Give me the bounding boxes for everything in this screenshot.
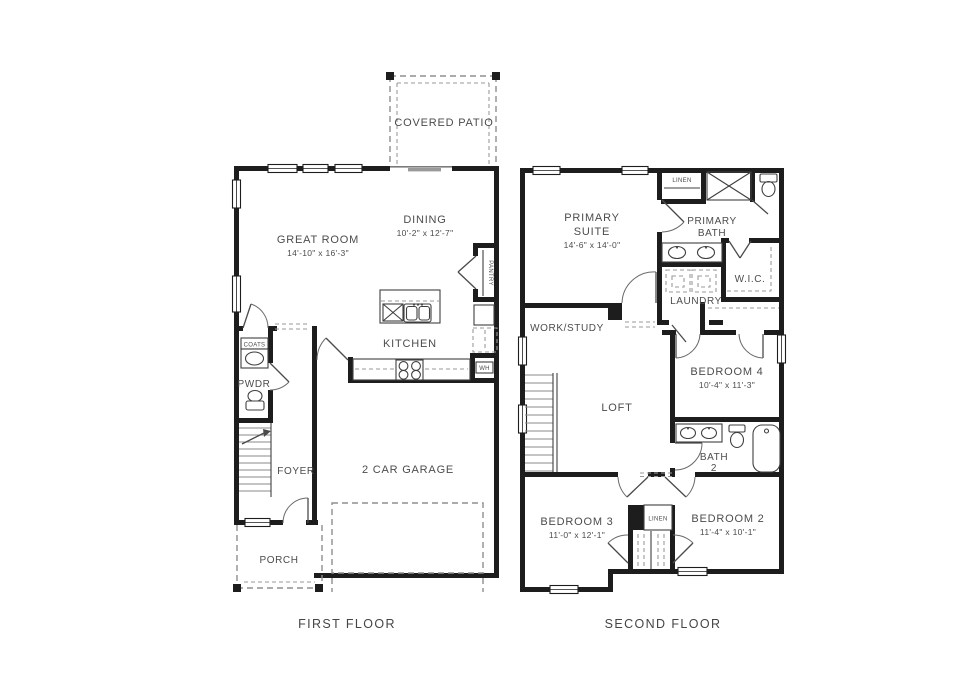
powder-door	[270, 363, 289, 390]
primary-bath-label-2: BATH	[698, 228, 726, 239]
pantry-door	[458, 256, 476, 289]
bath2-label-1: BATH	[700, 452, 728, 463]
kitchen-island	[380, 290, 440, 323]
garage-door-outline	[332, 503, 483, 592]
primary-bath-door	[662, 200, 684, 232]
staircase	[239, 423, 271, 497]
first-floor-doors	[243, 256, 476, 523]
kitchen-sink	[404, 303, 431, 322]
linen-lower-label: LINEN	[648, 517, 667, 523]
foyer-label: FOYER	[277, 466, 314, 477]
kitchen-label: KITCHEN	[383, 338, 437, 350]
window	[550, 586, 578, 594]
toilet-room-door	[752, 200, 768, 214]
bedroom3-label: BEDROOM 3	[540, 516, 613, 528]
window	[519, 405, 527, 433]
refrigerator	[473, 328, 497, 352]
first-floor-title: FIRST FLOOR	[298, 617, 396, 631]
primary-bath-label-1: PRIMARY	[687, 216, 737, 227]
bedroom3-dims: 11'-0" x 12'-1"	[549, 530, 605, 540]
window	[303, 165, 328, 173]
primary-suite-dims: 14'-6" x 14'-0"	[564, 240, 621, 250]
bath2-label-2: 2	[711, 463, 717, 474]
bedroom2-label: BEDROOM 2	[691, 513, 764, 525]
wic-door	[729, 241, 751, 258]
bedroom2-dims: 11'-4" x 10'-1"	[700, 527, 756, 537]
kitchen-counter	[353, 359, 470, 380]
first-floor-plan: WH COVERED PATIO GREAT ROOM 14'-10"	[233, 72, 501, 631]
staircase-upper	[525, 373, 557, 472]
loft-label: LOFT	[601, 402, 632, 414]
bedroom4-door	[676, 334, 700, 358]
shower	[707, 172, 751, 200]
bedroom4-label: BEDROOM 4	[690, 366, 763, 378]
primary-vanity	[662, 243, 722, 262]
bath2-toilet	[729, 425, 745, 448]
window	[519, 337, 527, 365]
great-room-label: GREAT ROOM	[277, 234, 359, 246]
washer-dryer	[666, 270, 716, 292]
powder-label: PWDR	[238, 379, 271, 390]
bath2-vanity	[676, 424, 722, 442]
window	[678, 568, 707, 576]
window	[268, 165, 297, 173]
powder-toilet	[246, 391, 264, 411]
water-heater: WH	[476, 362, 493, 373]
primary-toilet	[760, 174, 777, 197]
primary-suite-label-2: SUITE	[574, 226, 610, 238]
water-heater-label: WH	[479, 366, 490, 372]
garage-label: 2 CAR GARAGE	[362, 464, 454, 476]
patio-sliding-door	[408, 168, 441, 171]
bedroom2-closet-door	[673, 535, 693, 563]
window	[622, 167, 648, 175]
bedroom3-closet-door	[608, 535, 628, 563]
laundry-label: LAUNDRY	[670, 296, 722, 307]
window	[335, 165, 362, 173]
pantry-label: PANTRY	[487, 260, 493, 286]
second-floor-title: SECOND FLOOR	[605, 617, 722, 631]
coats-door	[243, 304, 268, 328]
bedroom4-closet-door	[739, 334, 763, 358]
window	[233, 180, 241, 208]
bedroom3-door	[618, 477, 648, 497]
work-study-label: WORK/STUDY	[530, 323, 604, 334]
kitchen-cabinet	[474, 305, 494, 325]
window	[778, 335, 786, 363]
wic-label: W.I.C.	[735, 274, 766, 285]
front-door	[283, 498, 308, 523]
window	[245, 519, 270, 527]
bedroom2-door	[665, 477, 695, 497]
primary-suite-label-1: PRIMARY	[564, 212, 620, 224]
great-room-dims: 14'-10" x 16'-3"	[287, 248, 349, 258]
bedroom4-dims: 10'-4" x 11'-3"	[699, 380, 755, 390]
covered-patio-label: COVERED PATIO	[394, 117, 493, 129]
stair-direction-arrow	[263, 429, 271, 437]
garage-entry-door	[317, 338, 348, 360]
window	[533, 167, 560, 175]
porch-label: PORCH	[259, 555, 298, 566]
coats-label: COATS	[244, 343, 266, 349]
bath2-tub	[753, 425, 780, 472]
bath2-door	[675, 443, 702, 470]
floorplan-svg: WH COVERED PATIO GREAT ROOM 14'-10"	[0, 0, 975, 692]
bedroom-closet-rods	[638, 531, 664, 569]
powder-sink	[241, 349, 268, 368]
range-stove	[396, 360, 423, 380]
linen-upper-label: LINEN	[672, 178, 691, 184]
floorplan-canvas: WH COVERED PATIO GREAT ROOM 14'-10"	[0, 0, 975, 692]
window	[233, 276, 241, 312]
dining-label: DINING	[403, 214, 446, 226]
second-floor-labels: PRIMARY SUITE 14'-6" x 14'-0" LINEN PRIM…	[530, 178, 765, 631]
primary-suite-door	[622, 272, 656, 303]
second-floor-plan: PRIMARY SUITE 14'-6" x 14'-0" LINEN PRIM…	[519, 167, 786, 632]
dining-dims: 10'-2" x 12'-7"	[397, 228, 454, 238]
